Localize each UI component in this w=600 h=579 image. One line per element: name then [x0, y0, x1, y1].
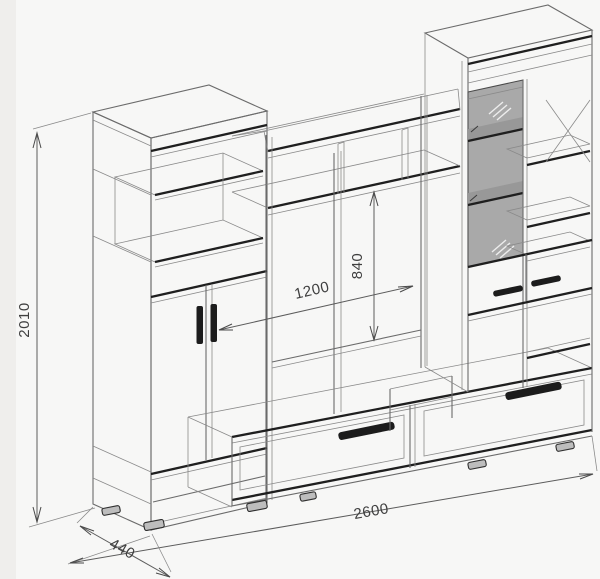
dim-label-1200: 1200 — [293, 278, 331, 303]
left-cabinet — [93, 85, 267, 530]
left-cabinet-shelf — [115, 153, 263, 200]
dimension-niche-height: 840 — [349, 192, 378, 340]
drawer-handle — [531, 275, 562, 287]
dimension-overall-height: 2010 — [16, 113, 95, 527]
bench-open-box — [390, 376, 452, 431]
tv-bench — [188, 348, 592, 507]
right-cabinet — [425, 5, 592, 432]
dim-label-440: 440 — [106, 535, 137, 563]
door-handle — [211, 304, 218, 342]
bench-drawer-left — [240, 415, 404, 490]
left-cabinet-shelf — [115, 220, 263, 267]
back-brace — [546, 100, 590, 162]
drawer-handle — [493, 285, 524, 297]
wall-unit-drawing: 2010 1200 840 2600 4 — [0, 0, 600, 579]
dim-label-840: 840 — [349, 253, 366, 280]
dim-label-2010: 2010 — [16, 302, 33, 337]
glass-door — [468, 80, 523, 267]
door-handle — [197, 306, 204, 344]
dimension-overall-width: 2600 — [68, 436, 597, 564]
dimension-niche-width: 1200 — [219, 278, 413, 330]
furniture-technical-drawing: 2010 1200 840 2600 4 — [0, 0, 600, 579]
left-cabinet-doors — [151, 271, 267, 480]
tv-panel-piers — [266, 95, 427, 505]
drawer-handle — [338, 421, 395, 440]
dim-label-2600: 2600 — [352, 500, 390, 523]
